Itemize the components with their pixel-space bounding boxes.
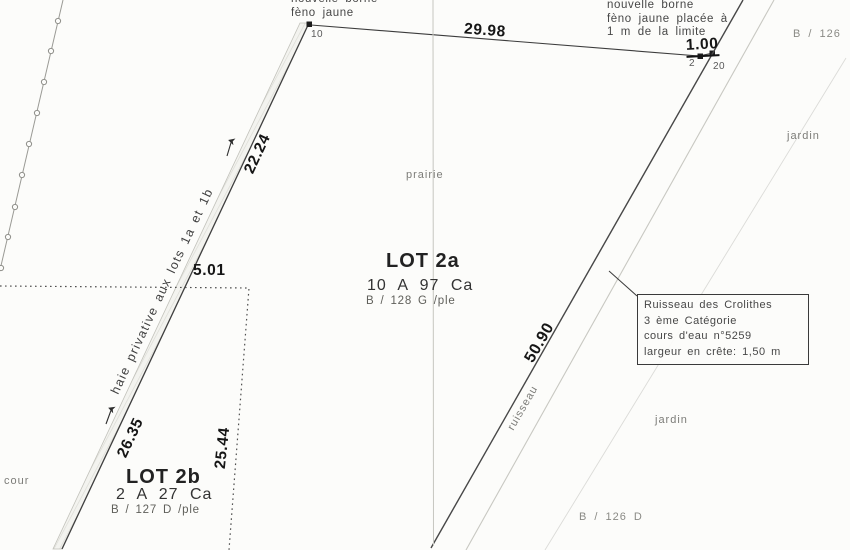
cadastral-ref-b126: B / 126 — [793, 28, 841, 40]
stream-info-line: cours d'eau n°5259 — [644, 329, 802, 345]
stream-info-line: Ruisseau des Crolithes — [644, 298, 802, 314]
cadastral-plan: nouvelle borne fèno jaune nouvelle borne… — [0, 0, 850, 550]
lot2a-ref: B / 128 G /ple — [366, 295, 456, 307]
stream-line — [431, 0, 774, 550]
lot2b-ref: B / 127 D /ple — [111, 504, 200, 516]
stream-info-box: Ruisseau des Crolithes 3 ème Catégorie c… — [637, 294, 809, 365]
cadastral-ref-b126d: B / 126 D — [579, 511, 643, 523]
lot2b-area: 2 A 27 Ca — [116, 486, 212, 504]
fence-line — [0, 0, 63, 271]
note-new-marker-right: nouvelle borne fèno jaune placée à 1 m d… — [607, 0, 728, 40]
measurement-29-98: 29.98 — [463, 20, 506, 41]
stream-info-line: largeur en crête: 1,50 m — [644, 345, 802, 361]
note-new-marker-left: nouvelle borne fèno jaune — [291, 0, 378, 20]
landuse-jardin-top: jardin — [787, 130, 820, 142]
measurement-5-01: 5.01 — [193, 262, 226, 280]
point-label-10: 10 — [311, 29, 323, 40]
point-label-20: 20 — [713, 61, 725, 72]
point-label-2: 2 — [689, 58, 695, 69]
landuse-prairie: prairie — [406, 169, 444, 181]
note-line: fèno jaune placée à — [607, 13, 728, 27]
stream-box-leader-line — [609, 271, 637, 296]
parcel-line-vertical — [433, 0, 434, 546]
note-line: fèno jaune — [291, 6, 378, 20]
lot2a-name: LOT 2a — [386, 250, 460, 273]
landuse-cour: cour — [4, 475, 29, 487]
note-line: nouvelle borne — [607, 0, 728, 13]
stream-info-line: 3 ème Catégorie — [644, 314, 802, 330]
landuse-jardin-bottom: jardin — [655, 414, 688, 426]
lot2a-area: 10 A 97 Ca — [367, 277, 473, 295]
measurement-1-00: 1.00 — [685, 35, 719, 58]
